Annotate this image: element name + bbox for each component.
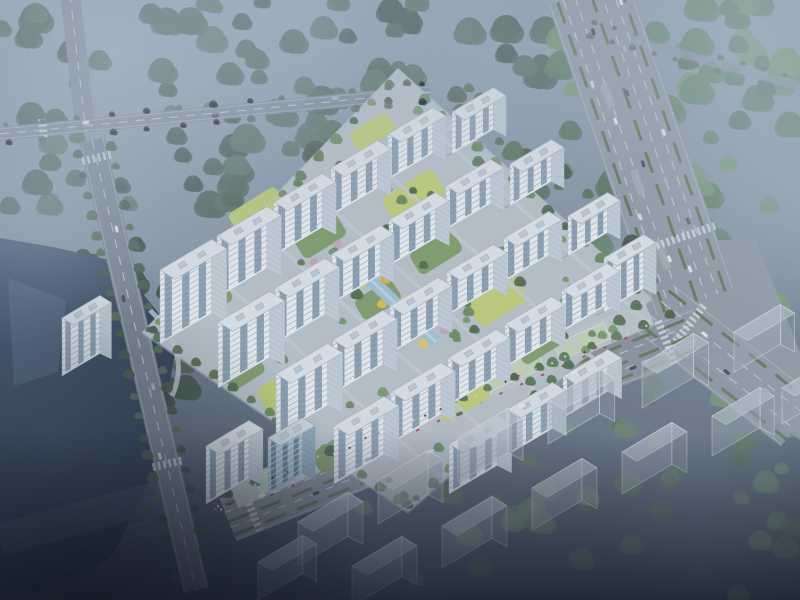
aerial-rendering-image <box>0 0 800 600</box>
scene-svg <box>0 0 800 600</box>
atmosphere-tint <box>0 0 800 600</box>
